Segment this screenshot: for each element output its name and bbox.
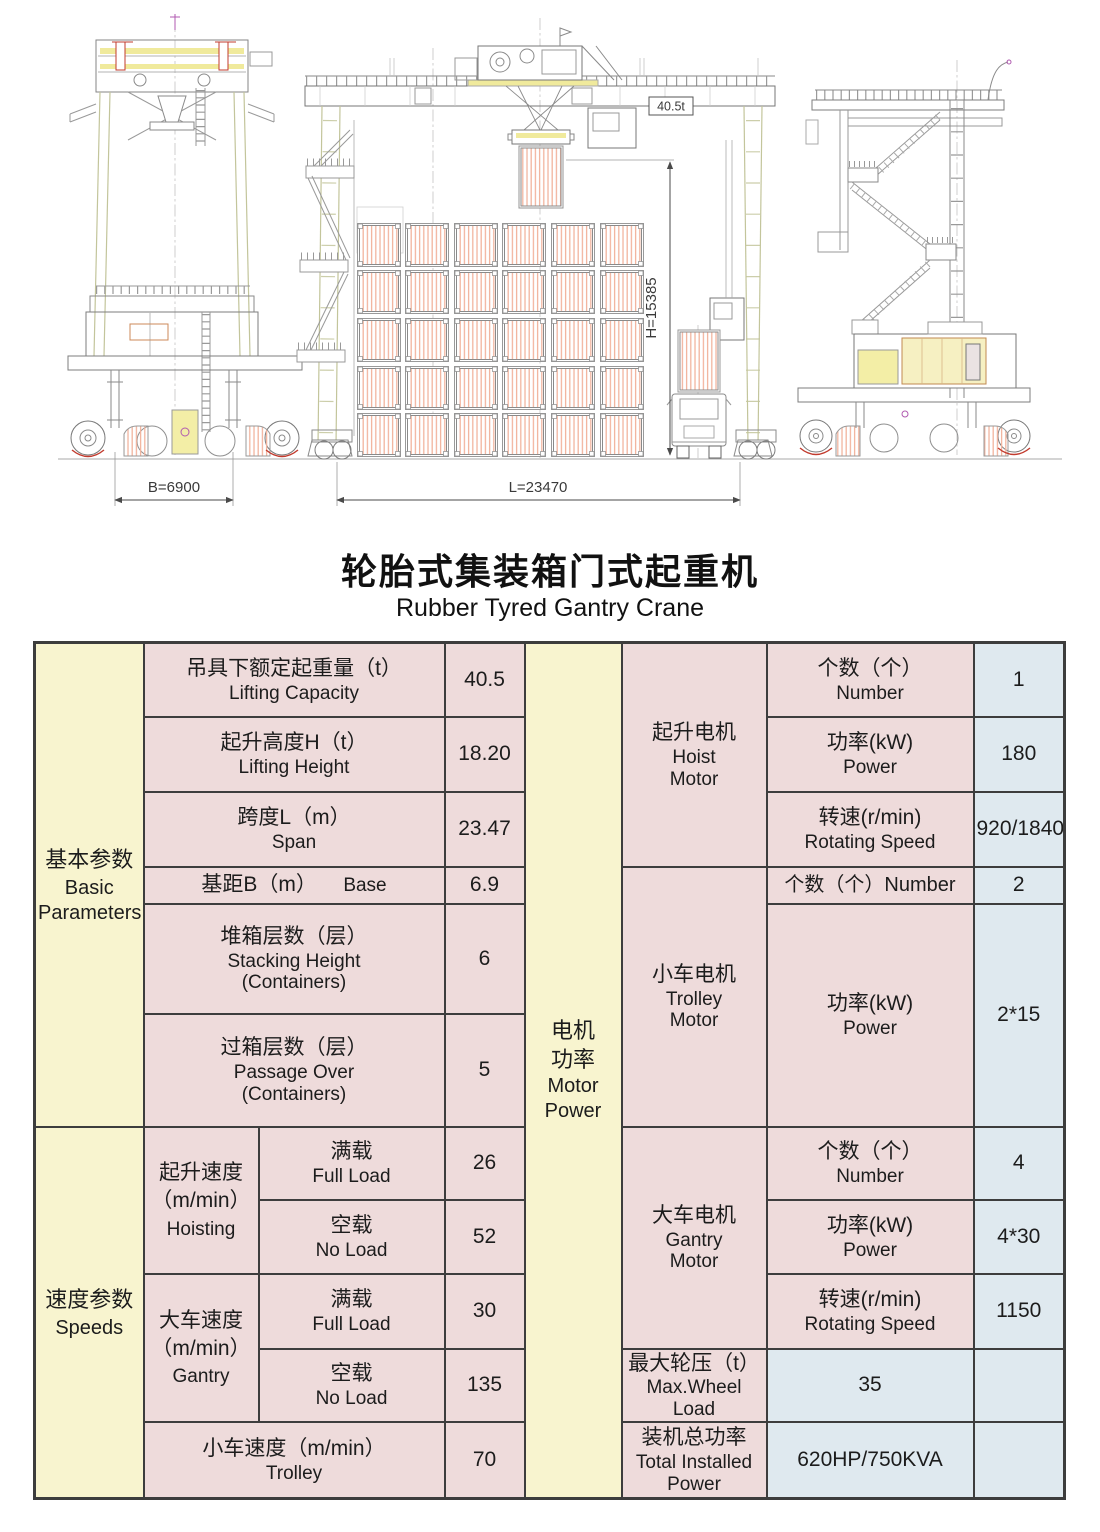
page-title-zh: 轮胎式集装箱门式起重机 [0, 552, 1100, 592]
value-trolley-power: 2*15 [974, 904, 1065, 1127]
value-gantry-no-load: 135 [445, 1349, 525, 1422]
container-stack [358, 224, 644, 457]
truck [667, 330, 731, 458]
dim-b: B=6900 [115, 452, 233, 506]
label-stacking-height: 堆箱层数（层） Stacking Height (Containers) [144, 904, 445, 1014]
label-hoist-speed: 转速(r/min) Rotating Speed [767, 792, 974, 867]
value-gantry-full-load: 30 [445, 1274, 525, 1349]
side-view [798, 60, 1030, 456]
dim-l: L=23470 [337, 462, 740, 506]
label-base: 基距B（m） Base [144, 867, 445, 904]
label-passage-over: 过箱层数（层） Passage Over (Containers) [144, 1014, 445, 1127]
label-total-installed-power: 装机总功率 Total Installed Power [622, 1422, 767, 1499]
label-hoist-power: 功率(kW) Power [767, 717, 974, 792]
value-hoisting-full-load: 26 [445, 1127, 525, 1200]
hanging-container [519, 146, 563, 208]
spec-table: 基本参数 Basic Parameters 吊具下额定起重量（t） Liftin… [33, 641, 1066, 1500]
value-lifting-capacity: 40.5 [445, 643, 525, 717]
group-motor-power: 电机 功率 Motor Power [525, 643, 622, 1499]
group-speeds: 速度参数 Speeds [35, 1127, 144, 1499]
value-lifting-height: 18.20 [445, 717, 525, 792]
value-trolley-speed: 70 [445, 1422, 525, 1499]
label-trolley-power: 功率(kW) Power [767, 904, 974, 1127]
label-gantry-rotating-speed: 转速(r/min) Rotating Speed [767, 1274, 974, 1349]
dim-h-label: H=15385 [643, 277, 660, 338]
label-lifting-height: 起升高度H（t） Lifting Height [144, 717, 445, 792]
label-trolley-number: 个数（个）Number [767, 867, 974, 904]
cell-total-power-empty [974, 1422, 1065, 1499]
front-view: 40.5t H=15385 L=23470 [297, 18, 776, 506]
label-gantry-no-load: 空载 No Load [259, 1349, 445, 1422]
value-span: 23.47 [445, 792, 525, 867]
value-max-wheel-load: 35 [767, 1349, 974, 1422]
spec-table-wrap: 基本参数 Basic Parameters 吊具下额定起重量（t） Liftin… [33, 641, 1066, 1500]
label-span: 跨度L（m） Span [144, 792, 445, 867]
title-block: 轮胎式集装箱门式起重机 Rubber Tyred Gantry Crane [0, 552, 1100, 622]
group-trolley-motor: 小车电机 Trolley Motor [622, 867, 767, 1127]
label-trolley-speed: 小车速度（m/min） Trolley [144, 1422, 445, 1499]
load-label: 40.5t [657, 100, 685, 114]
value-hoisting-no-load: 52 [445, 1200, 525, 1274]
load-label-box: 40.5t [649, 97, 693, 115]
value-hoist-speed: 920/1840 [974, 792, 1065, 867]
value-stacking-height: 6 [445, 904, 525, 1014]
stairs [848, 112, 956, 334]
label-lifting-capacity: 吊具下额定起重量（t） Lifting Capacity [144, 643, 445, 717]
dim-l-label: L=23470 [509, 479, 568, 496]
group-gantry-motor: 大车电机 Gantry Motor [622, 1127, 767, 1349]
page-title-en: Rubber Tyred Gantry Crane [0, 595, 1100, 623]
value-gantry-number: 4 [974, 1127, 1065, 1200]
label-gantry-number: 个数（个） Number [767, 1127, 974, 1200]
crane-technical-drawing: B=6900 [0, 0, 1100, 540]
label-gantry-speed: 大车速度 （m/min） Gantry [144, 1274, 259, 1422]
label-hoisting-no-load: 空载 No Load [259, 1200, 445, 1274]
cell-max-wheel-empty [974, 1349, 1065, 1422]
value-passage-over: 5 [445, 1014, 525, 1127]
value-hoist-power: 180 [974, 717, 1065, 792]
value-gantry-rotating-speed: 1150 [974, 1274, 1065, 1349]
label-hoisting-speed: 起升速度 （m/min） Hoisting [144, 1127, 259, 1274]
value-total-installed-power: 620HP/750KVA [767, 1422, 974, 1499]
value-hoist-number: 1 [974, 643, 1065, 717]
label-gantry-motor-power: 功率(kW) Power [767, 1200, 974, 1274]
group-hoist-motor: 起升电机 Hoist Motor [622, 643, 767, 867]
group-basic-en2: Parameters [38, 901, 141, 926]
dim-b-label: B=6900 [148, 479, 200, 496]
value-gantry-motor-power: 4*30 [974, 1200, 1065, 1274]
group-basic-zh: 基本参数 [38, 843, 141, 876]
group-basic-en1: Basic [38, 876, 141, 901]
label-max-wheel-load: 最大轮压（t） Max.Wheel Load [622, 1349, 767, 1422]
group-basic-parameters: 基本参数 Basic Parameters [35, 643, 144, 1127]
datasheet-page: B=6900 [0, 0, 1100, 1532]
label-gantry-full-load: 满载 Full Load [259, 1274, 445, 1349]
label-hoisting-full-load: 满载 Full Load [259, 1127, 445, 1200]
value-base: 6.9 [445, 867, 525, 904]
value-trolley-number: 2 [974, 867, 1065, 904]
label-hoist-number: 个数（个） Number [767, 643, 974, 717]
end-view: B=6900 [68, 14, 302, 506]
